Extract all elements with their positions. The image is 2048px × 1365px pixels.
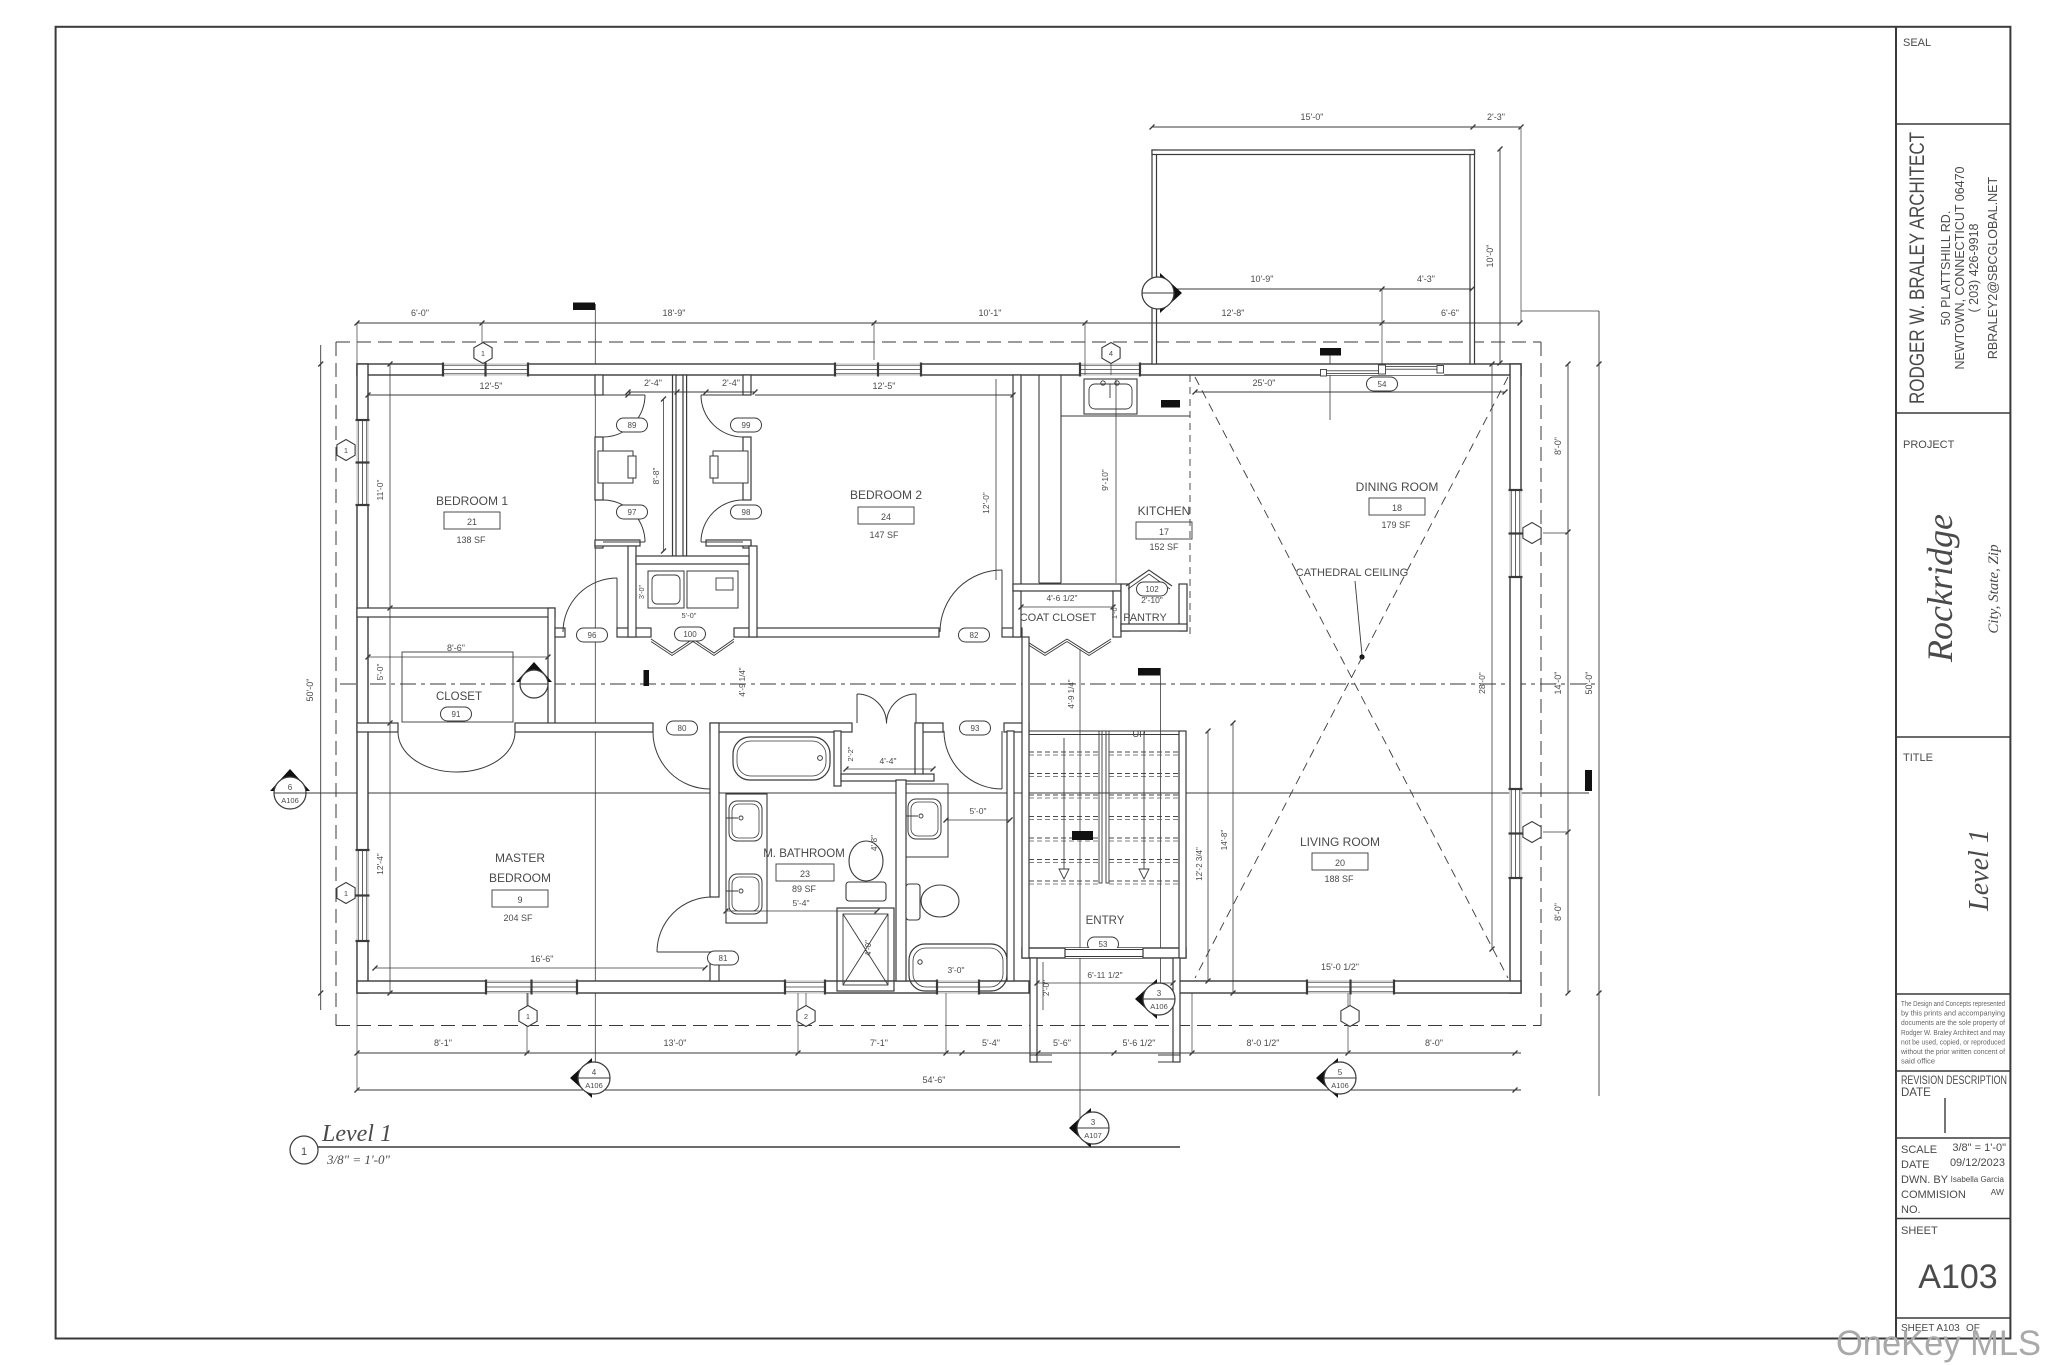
svg-text:KITCHEN: KITCHEN [1138, 504, 1191, 518]
svg-text:ENTRY: ENTRY [1086, 915, 1125, 927]
svg-text:The Design and Concepts repres: The Design and Concepts represented [1901, 999, 2005, 1008]
svg-text:8'-0": 8'-0" [1553, 437, 1563, 455]
svg-text:City, State, Zip: City, State, Zip [1986, 544, 2002, 634]
svg-text:8'-0 1/2": 8'-0 1/2" [1247, 1038, 1280, 1048]
svg-text:5'-4": 5'-4" [793, 898, 810, 908]
svg-text:98: 98 [742, 508, 751, 517]
svg-text:TITLE: TITLE [1903, 752, 1933, 764]
svg-text:4'-6 1/2": 4'-6 1/2" [1046, 593, 1077, 603]
svg-text:UP: UP [1132, 729, 1145, 740]
svg-text:5'-0": 5'-0" [375, 664, 385, 681]
svg-text:1: 1 [344, 889, 348, 898]
svg-text:54'-6": 54'-6" [923, 1075, 946, 1085]
svg-text:RBRALEY2@SBCGLOBAL.NET: RBRALEY2@SBCGLOBAL.NET [1986, 177, 2000, 360]
svg-text:PANTRY: PANTRY [1123, 612, 1167, 624]
svg-text:25'-0": 25'-0" [1253, 378, 1276, 388]
svg-text:12'-0": 12'-0" [981, 492, 991, 514]
svg-text:CATHEDRAL CEILING: CATHEDRAL CEILING [1296, 567, 1408, 579]
svg-text:1: 1 [301, 1146, 307, 1158]
svg-text:6'-11 1/2": 6'-11 1/2" [1087, 970, 1122, 980]
svg-text:188 SF: 188 SF [1324, 874, 1354, 884]
svg-text:Level 1: Level 1 [1964, 829, 1995, 912]
svg-text:6: 6 [288, 783, 293, 792]
svg-text:24: 24 [881, 512, 891, 522]
svg-text:Rodger W. Braley Architect and: Rodger W. Braley Architect and may [1901, 1028, 2005, 1037]
svg-text:96: 96 [588, 631, 597, 640]
svg-text:21: 21 [467, 517, 477, 527]
svg-text:8'-8": 8'-8" [651, 468, 661, 485]
svg-text:A103: A103 [1918, 1258, 1997, 1296]
svg-text:8'-0": 8'-0" [1425, 1038, 1443, 1048]
svg-text:11'-0": 11'-0" [375, 479, 385, 500]
svg-text:A106: A106 [1150, 1002, 1168, 1011]
svg-text:28'-0": 28'-0" [1477, 672, 1487, 694]
svg-text:12'-8": 12'-8" [1222, 308, 1245, 318]
svg-text:3/8" = 1'-0": 3/8" = 1'-0" [326, 1152, 390, 1167]
svg-text:15'-0": 15'-0" [1301, 112, 1324, 122]
svg-text:NO.: NO. [1901, 1204, 1921, 1216]
svg-text:REVISION DESCRIPTION: REVISION DESCRIPTION [1901, 1075, 2007, 1087]
svg-text:4: 4 [1109, 349, 1113, 358]
svg-text:5: 5 [1338, 1068, 1343, 1077]
svg-text:18: 18 [1392, 503, 1402, 513]
svg-text:5'-6 1/2": 5'-6 1/2" [1123, 1038, 1156, 1048]
svg-text:50'-0": 50'-0" [305, 679, 315, 702]
svg-text:91: 91 [452, 710, 461, 719]
svg-text:SHEET: SHEET [1901, 1225, 1938, 1237]
svg-text:LIVING ROOM: LIVING ROOM [1300, 835, 1380, 849]
svg-text:9'-10": 9'-10" [1100, 469, 1110, 491]
svg-text:DWN. BY: DWN. BY [1901, 1174, 1949, 1186]
svg-text:BEDROOM 1: BEDROOM 1 [436, 494, 508, 508]
svg-text:COAT CLOSET: COAT CLOSET [1020, 612, 1097, 624]
svg-text:A107: A107 [1084, 1131, 1102, 1140]
svg-text:2'-2": 2'-2" [846, 746, 855, 761]
svg-text:Rockridge: Rockridge [1920, 514, 1960, 663]
svg-text:12'-5": 12'-5" [873, 381, 896, 391]
svg-text:80: 80 [678, 724, 687, 733]
svg-text:152 SF: 152 SF [1149, 542, 1179, 552]
svg-text:M. BATHROOM: M. BATHROOM [763, 848, 845, 860]
svg-text:9: 9 [517, 895, 522, 905]
svg-text:3: 3 [1157, 989, 1162, 998]
svg-text:6'-0": 6'-0" [411, 308, 429, 318]
svg-text:4: 4 [592, 1068, 597, 1077]
svg-text:1: 1 [526, 1012, 530, 1021]
svg-text:8'-6": 8'-6" [447, 643, 465, 653]
svg-text:53: 53 [1099, 940, 1108, 949]
svg-text:09/12/2023: 09/12/2023 [1950, 1157, 2005, 1169]
svg-text:3'-0": 3'-0" [948, 965, 965, 975]
svg-text:1'-0": 1'-0" [1112, 605, 1119, 619]
svg-text:3: 3 [1091, 1118, 1096, 1127]
svg-text:89 SF: 89 SF [792, 884, 817, 894]
svg-text:17: 17 [1159, 527, 1169, 537]
svg-text:2'-10": 2'-10" [1141, 595, 1163, 605]
svg-text:2'-3": 2'-3" [1487, 112, 1505, 122]
svg-text:4'-9 1/4": 4'-9 1/4" [738, 667, 747, 696]
svg-text:204 SF: 204 SF [503, 913, 533, 923]
svg-text:AW: AW [1991, 1187, 2004, 1197]
svg-text:89: 89 [628, 421, 637, 430]
svg-text:2: 2 [804, 1012, 808, 1021]
svg-text:6'-6": 6'-6" [1441, 308, 1459, 318]
svg-text:12'-4": 12'-4" [375, 853, 385, 875]
svg-text:COMMISION: COMMISION [1901, 1189, 1966, 1201]
svg-text:12'-2 3/4": 12'-2 3/4" [1195, 847, 1204, 881]
svg-text:15'-0 1/2": 15'-0 1/2" [1321, 962, 1359, 972]
svg-text:7'-1": 7'-1" [870, 1038, 888, 1048]
svg-text:NEWTOWN, CONNECTICUT 06470: NEWTOWN, CONNECTICUT 06470 [1953, 166, 1967, 369]
svg-text:16'-6": 16'-6" [531, 954, 554, 964]
svg-text:2'-4": 2'-4" [644, 378, 662, 388]
svg-text:SCALE: SCALE [1901, 1144, 1937, 1156]
svg-text:BEDROOM: BEDROOM [489, 871, 551, 885]
svg-text:13'-0": 13'-0" [664, 1038, 687, 1048]
svg-text:4'-0": 4'-0" [864, 940, 873, 956]
svg-text:97: 97 [628, 508, 637, 517]
svg-text:50'-0": 50'-0" [1584, 672, 1594, 695]
svg-text:10'-9": 10'-9" [1251, 274, 1274, 284]
svg-text:147 SF: 147 SF [869, 530, 899, 540]
svg-text:MASTER: MASTER [495, 851, 545, 865]
svg-text:99: 99 [742, 421, 751, 430]
svg-text:14'-0": 14'-0" [1553, 672, 1563, 695]
svg-text:by this prints and accompanyin: by this prints and accompanying [1901, 1009, 2005, 1018]
svg-text:( 203) 426-9918: ( 203) 426-9918 [1967, 223, 1981, 312]
svg-text:OneKey MLS: OneKey MLS [1836, 1324, 2041, 1363]
svg-text:3/8" = 1'-0": 3/8" = 1'-0" [1952, 1142, 2006, 1154]
svg-text:PROJECT: PROJECT [1903, 439, 1955, 451]
svg-text:54: 54 [1378, 380, 1387, 389]
svg-text:14'-8": 14'-8" [1220, 830, 1229, 851]
svg-text:10'-0": 10'-0" [1485, 245, 1495, 268]
svg-text:5'-0": 5'-0" [970, 806, 987, 816]
svg-text:4'-8": 4'-8" [870, 835, 879, 851]
svg-text:5'-6": 5'-6" [1053, 1038, 1071, 1048]
svg-text:18'-9": 18'-9" [663, 308, 686, 318]
svg-text:RODGER W. BRALEY ARCHITECT: RODGER W. BRALEY ARCHITECT [1906, 132, 1929, 404]
svg-text:4'-4": 4'-4" [880, 756, 897, 766]
svg-text:not be used, copied, or reprod: not be used, copied, or reproduced [1901, 1037, 2005, 1046]
svg-text:documents are the sole propert: documents are the sole property of [1901, 1018, 2006, 1027]
svg-text:179 SF: 179 SF [1381, 520, 1411, 530]
svg-text:5'-0": 5'-0" [682, 611, 697, 620]
svg-text:1: 1 [344, 446, 348, 455]
svg-text:SEAL: SEAL [1903, 37, 1931, 49]
svg-text:3'-0": 3'-0" [639, 585, 646, 599]
svg-text:50 PLATTSHILL RD.: 50 PLATTSHILL RD. [1939, 211, 1953, 326]
svg-text:82: 82 [970, 631, 979, 640]
svg-text:BEDROOM 2: BEDROOM 2 [850, 488, 922, 502]
svg-text:CLOSET: CLOSET [436, 691, 482, 703]
svg-text:5'-4": 5'-4" [982, 1038, 1000, 1048]
svg-text:4'-9 1/4": 4'-9 1/4" [1067, 679, 1076, 708]
svg-text:8'-0": 8'-0" [1553, 903, 1563, 921]
svg-text:Level 1: Level 1 [321, 1121, 392, 1147]
svg-text:12'-5": 12'-5" [480, 381, 503, 391]
svg-text:100: 100 [683, 630, 697, 639]
svg-text:93: 93 [971, 724, 980, 733]
svg-text:23: 23 [800, 869, 810, 879]
svg-text:10'-1": 10'-1" [979, 308, 1002, 318]
svg-text:20: 20 [1335, 858, 1345, 868]
svg-text:A106: A106 [281, 796, 299, 805]
svg-text:81: 81 [719, 954, 728, 963]
svg-text:8'-1": 8'-1" [434, 1038, 452, 1048]
svg-text:2'-4": 2'-4" [722, 378, 740, 388]
svg-text:A106: A106 [585, 1081, 603, 1090]
svg-text:DATE: DATE [1901, 1159, 1930, 1171]
svg-text:1: 1 [481, 349, 485, 358]
svg-text:DINING ROOM: DINING ROOM [1356, 480, 1439, 494]
svg-text:4'-3": 4'-3" [1417, 274, 1435, 284]
svg-text:A106: A106 [1331, 1081, 1349, 1090]
svg-text:Isabella Garcia: Isabella Garcia [1951, 1175, 2005, 1184]
svg-text:DATE: DATE [1901, 1087, 1931, 1099]
svg-text:without the prior written conc: without the prior written concent of [1900, 1047, 2006, 1056]
svg-text:2'-0": 2'-0" [1042, 980, 1051, 996]
svg-text:said office: said office [1901, 1057, 1935, 1066]
svg-text:138 SF: 138 SF [456, 535, 486, 545]
svg-text:102: 102 [1145, 585, 1159, 594]
